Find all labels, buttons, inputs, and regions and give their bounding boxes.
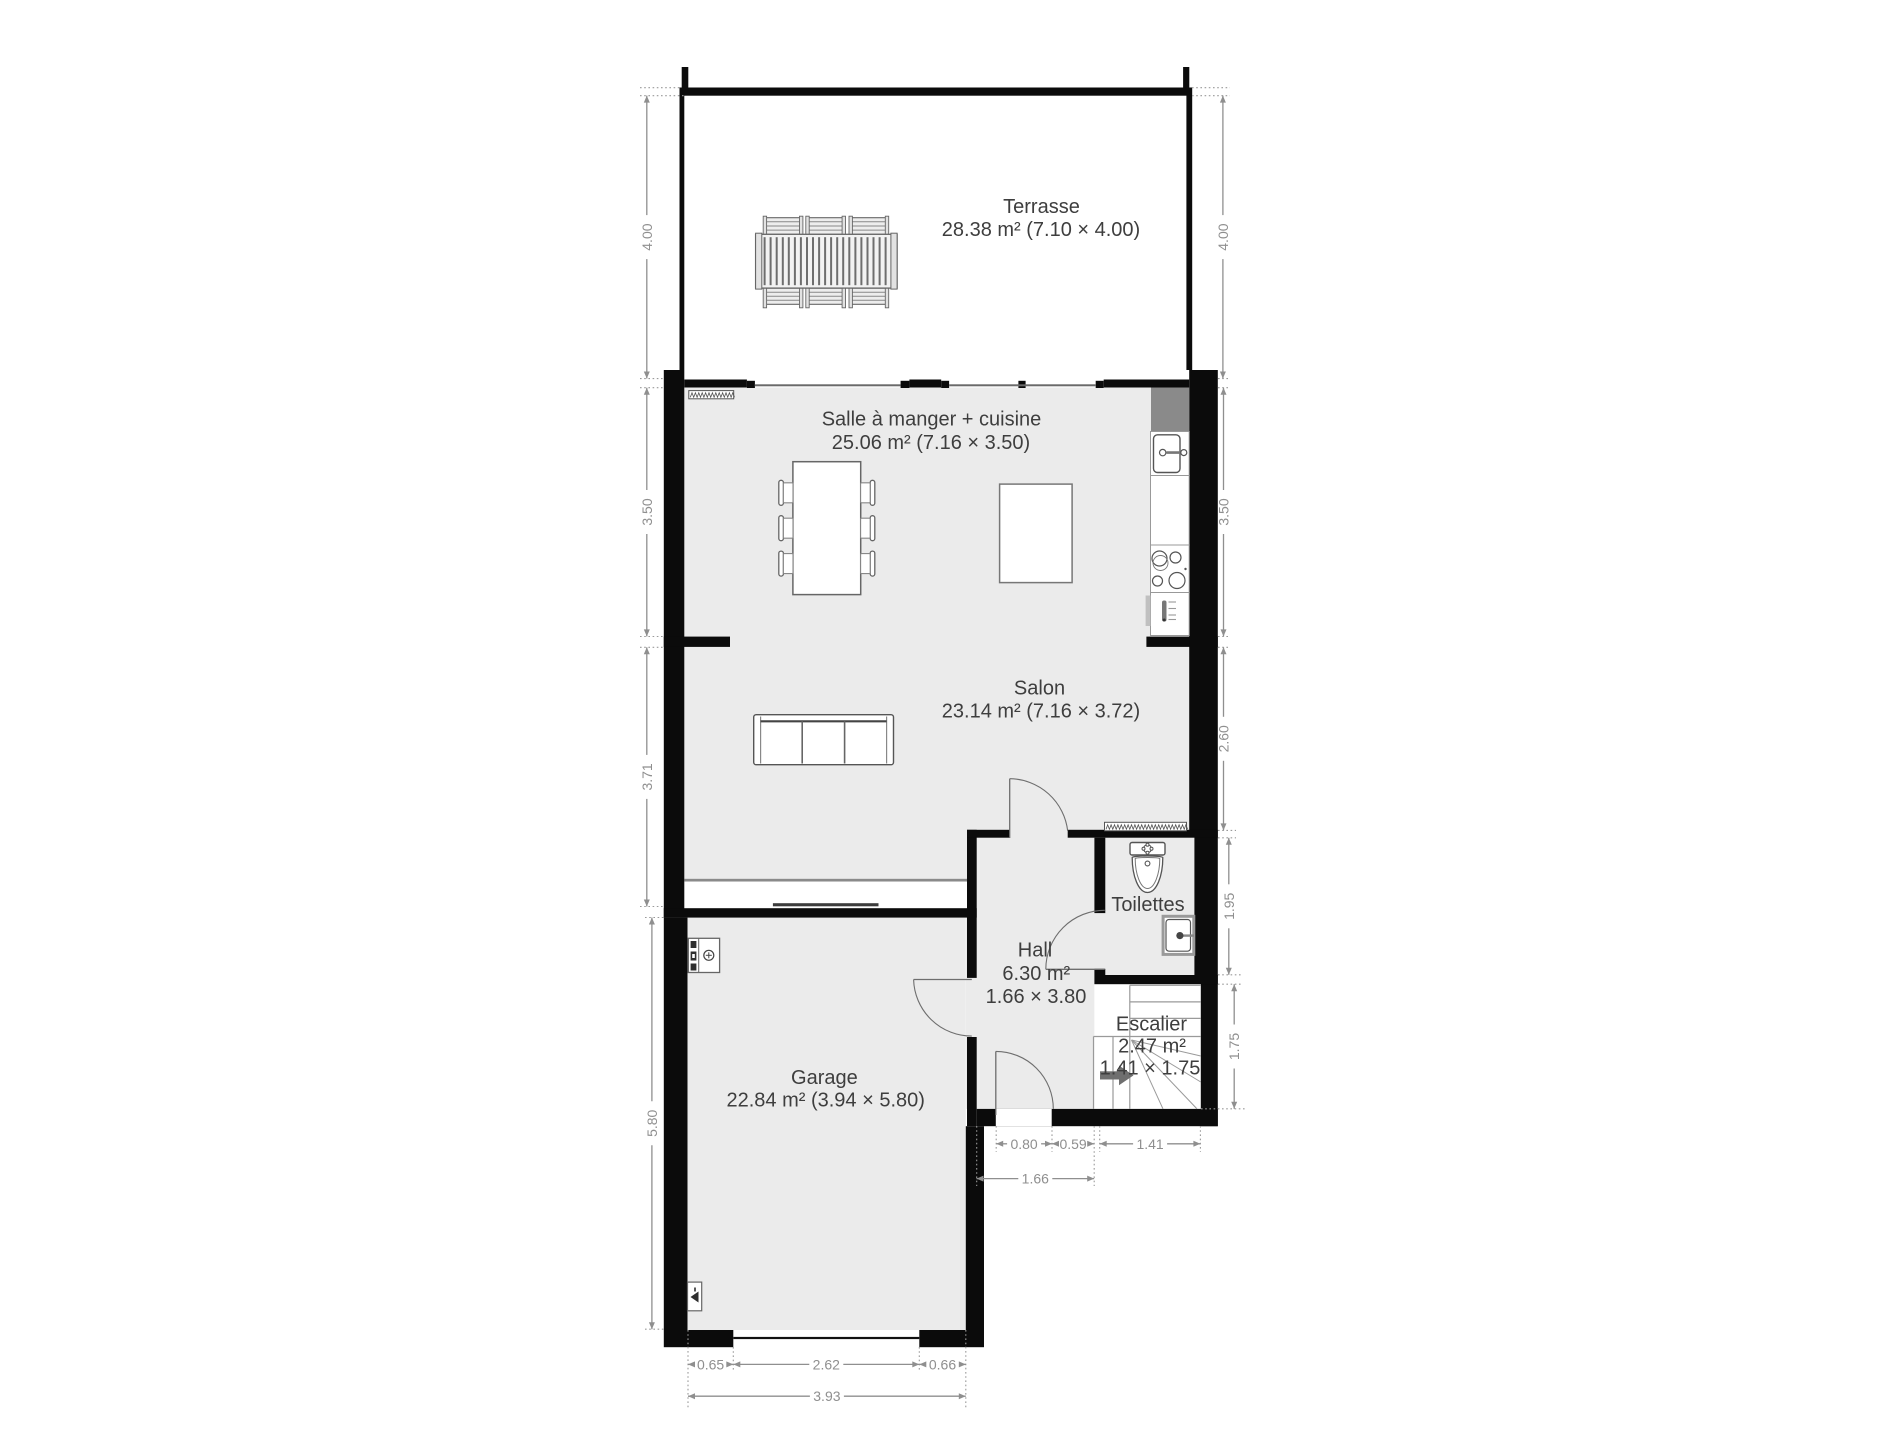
svg-text:3.93: 3.93 [813, 1388, 840, 1404]
svg-text:1.95: 1.95 [1221, 892, 1237, 919]
svg-text:Escalier: Escalier [1116, 1013, 1187, 1035]
svg-text:Terrasse: Terrasse [1003, 196, 1080, 218]
svg-text:25.06 m² (7.16 × 3.50): 25.06 m² (7.16 × 3.50) [832, 432, 1030, 454]
svg-text:2.62: 2.62 [813, 1356, 840, 1372]
svg-text:4.00: 4.00 [1215, 223, 1231, 250]
svg-text:Garage: Garage [791, 1067, 858, 1089]
svg-text:1.41: 1.41 [1136, 1136, 1163, 1152]
svg-text:Toilettes: Toilettes [1111, 894, 1184, 916]
svg-text:Salle à manger + cuisine: Salle à manger + cuisine [822, 409, 1042, 431]
svg-text:1.41 × 1.75: 1.41 × 1.75 [1100, 1058, 1201, 1080]
svg-text:0.65: 0.65 [697, 1356, 724, 1372]
svg-text:28.38 m² (7.10 × 4.00): 28.38 m² (7.10 × 4.00) [942, 219, 1140, 241]
svg-text:3.50: 3.50 [1216, 498, 1232, 525]
svg-text:2.60: 2.60 [1216, 725, 1232, 752]
svg-text:0.59: 0.59 [1059, 1136, 1086, 1152]
svg-text:0.66: 0.66 [929, 1356, 956, 1372]
svg-text:1.66: 1.66 [1022, 1171, 1049, 1187]
svg-text:5.80: 5.80 [644, 1109, 660, 1136]
svg-text:1.75: 1.75 [1226, 1033, 1242, 1060]
svg-text:4.00: 4.00 [639, 223, 655, 250]
svg-text:3.50: 3.50 [639, 498, 655, 525]
svg-text:1.66 × 3.80: 1.66 × 3.80 [986, 986, 1087, 1008]
svg-text:22.84 m² (3.94 × 5.80): 22.84 m² (3.94 × 5.80) [726, 1089, 924, 1111]
svg-text:23.14 m² (7.16 × 3.72): 23.14 m² (7.16 × 3.72) [942, 700, 1140, 722]
svg-text:Hall: Hall [1018, 940, 1052, 962]
svg-text:0.80: 0.80 [1010, 1136, 1037, 1152]
svg-text:3.71: 3.71 [639, 763, 655, 790]
svg-text:Salon: Salon [1014, 678, 1065, 700]
svg-text:6.30 m²: 6.30 m² [1002, 963, 1070, 985]
svg-text:2.47 m²: 2.47 m² [1118, 1036, 1186, 1058]
